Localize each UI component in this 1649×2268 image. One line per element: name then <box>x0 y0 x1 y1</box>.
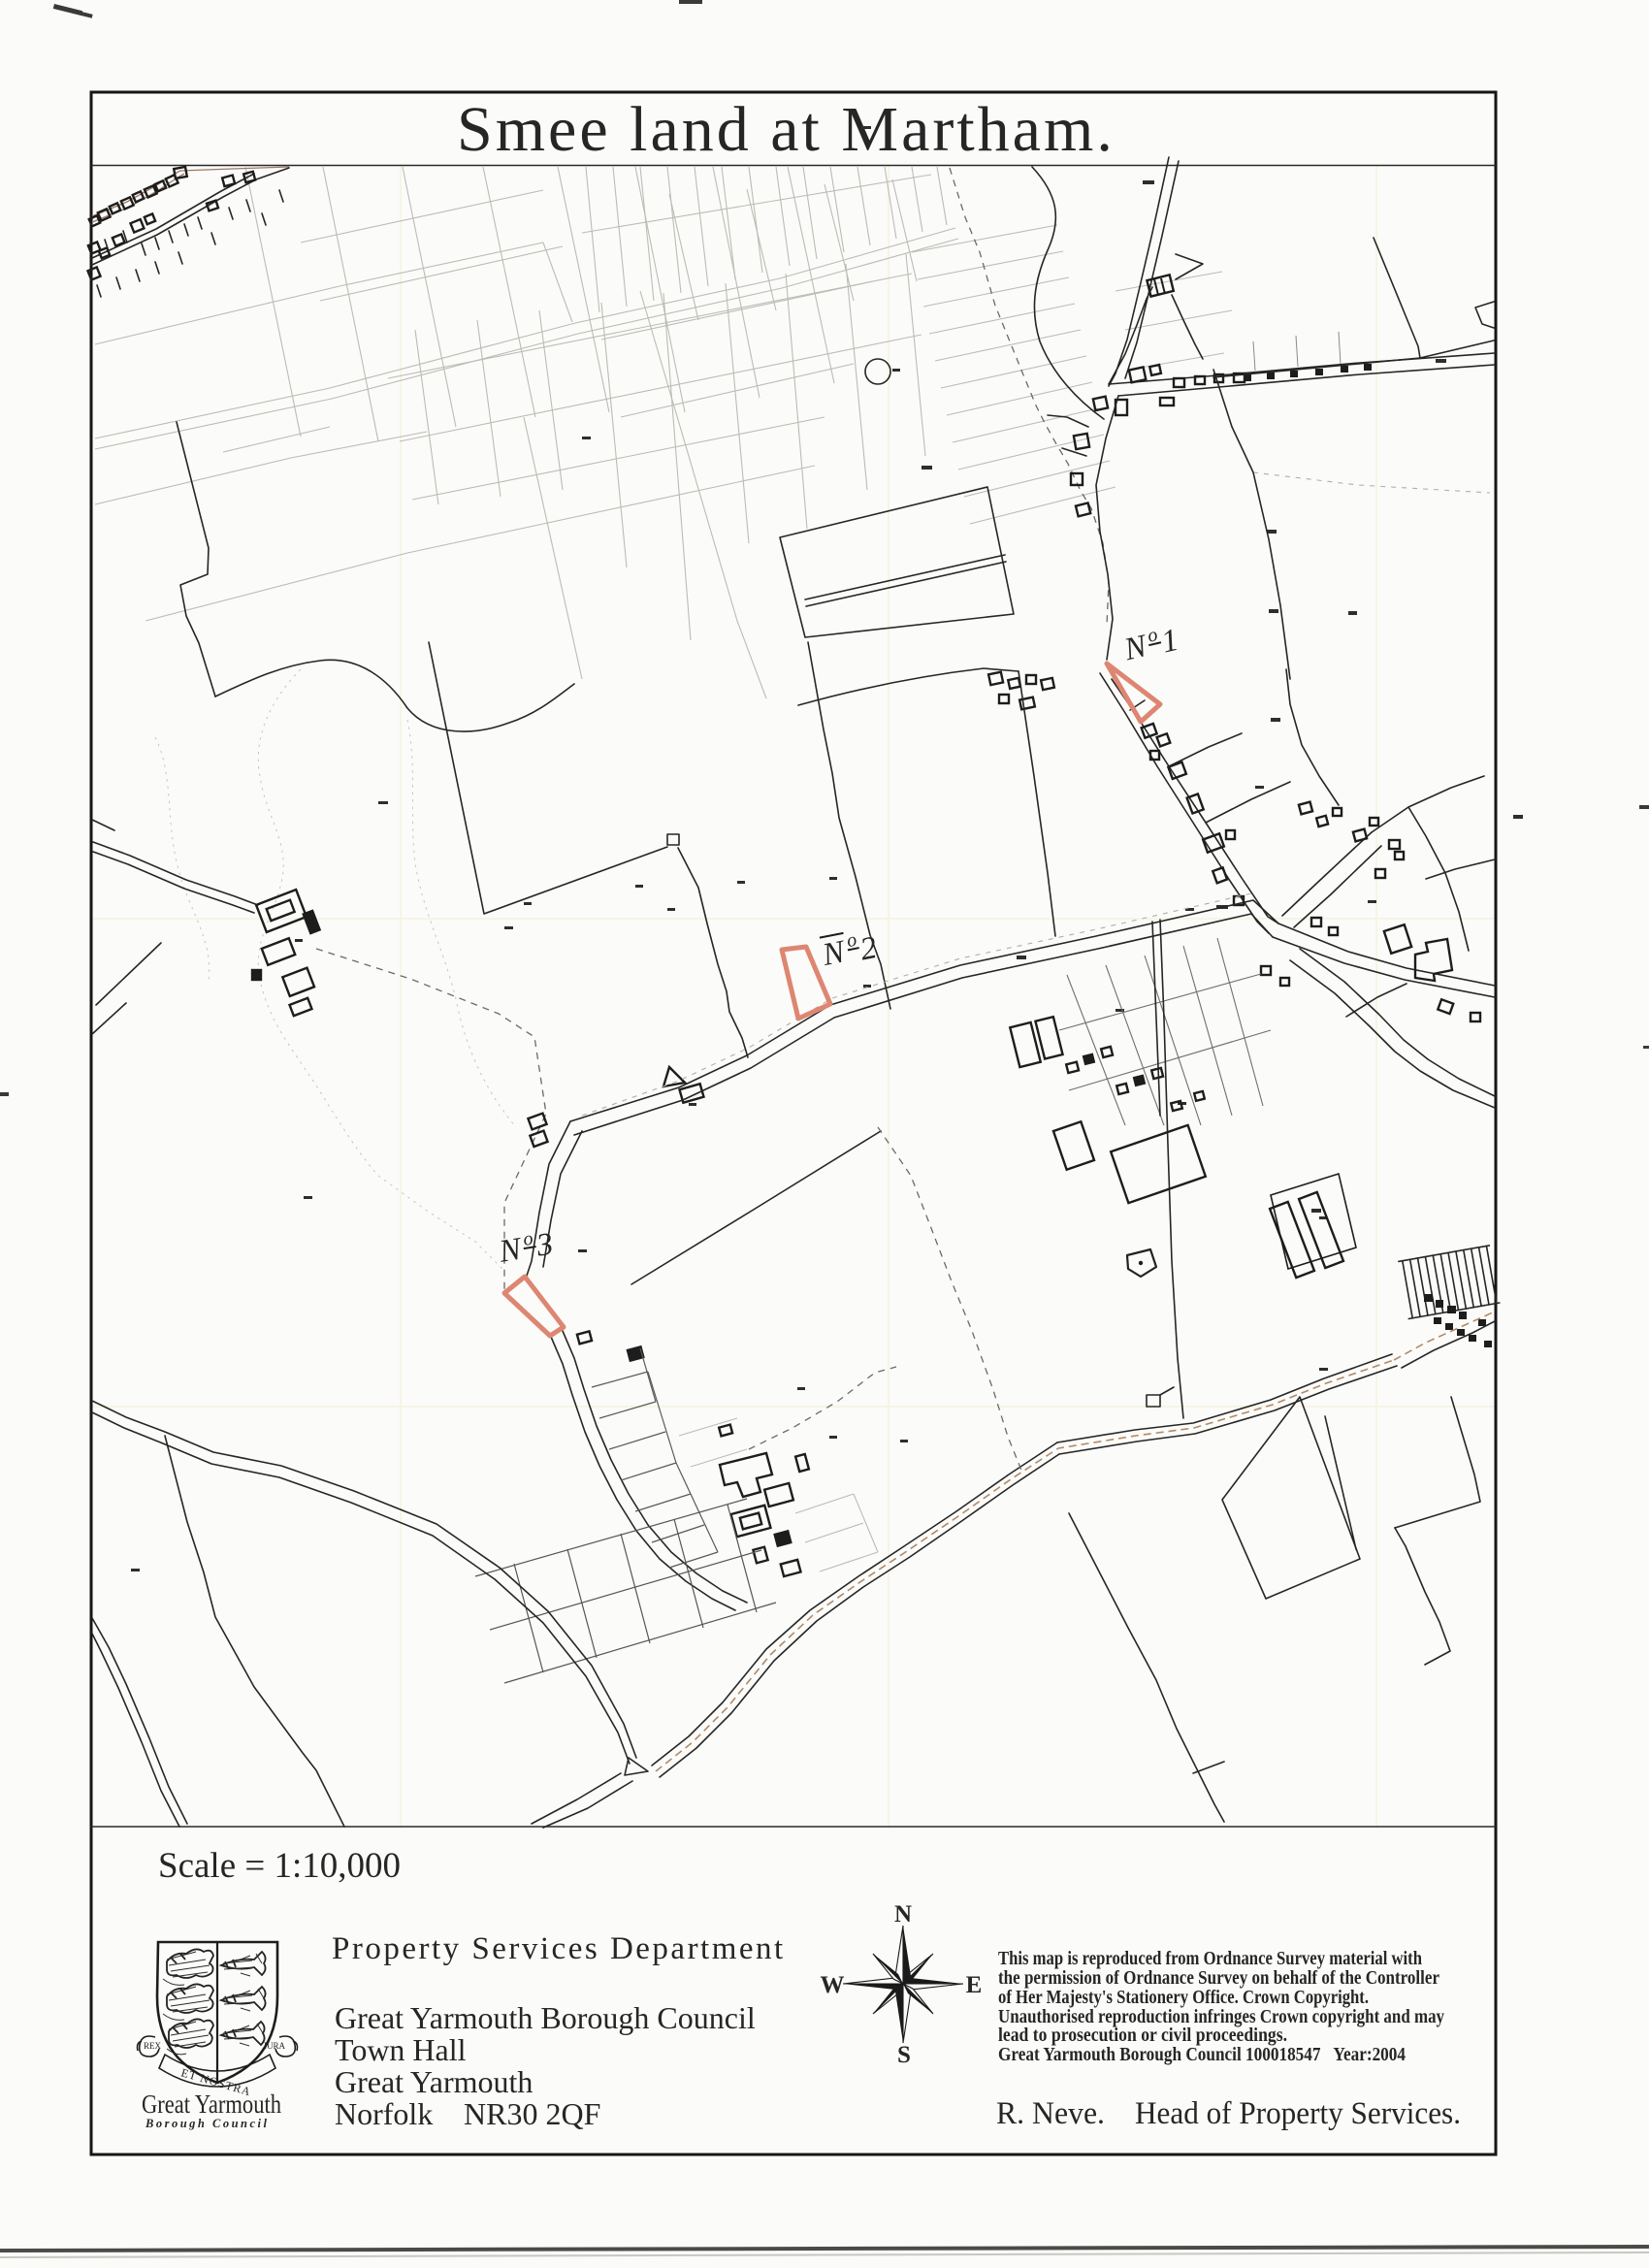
svg-text:S: S <box>897 2042 911 2068</box>
svg-text:Great Yarmouth Borough Council: Great Yarmouth Borough Council <box>335 2000 756 2035</box>
svg-text:Norfolk: Norfolk <box>335 2096 433 2131</box>
svg-text:N: N <box>894 1901 912 1928</box>
svg-text:Town Hall: Town Hall <box>335 2032 467 2067</box>
svg-text:IURA: IURA <box>264 2041 285 2051</box>
svg-text:Head of Property Services.: Head of Property Services. <box>1135 2096 1461 2131</box>
svg-text:Smee land at Martham.: Smee land at Martham. <box>457 94 1115 165</box>
svg-text:the permission of Ordnance Sur: the permission of Ordnance Survey on beh… <box>998 1967 1439 1989</box>
svg-text:REX: REX <box>144 2041 162 2051</box>
svg-text:W: W <box>821 1972 845 1998</box>
svg-text:Great Yarmouth Borough Council: Great Yarmouth Borough Council 100018547… <box>998 2044 1406 2065</box>
svg-text:This map is reproduced from Or: This map is reproduced from Ordnance Sur… <box>998 1948 1422 1969</box>
svg-text:Great Yarmouth: Great Yarmouth <box>335 2064 533 2099</box>
svg-text:Property Services Department: Property Services Department <box>332 1931 786 1966</box>
svg-text:Great Yarmouth: Great Yarmouth <box>142 2090 281 2119</box>
svg-text:Scale = 1:10,000: Scale = 1:10,000 <box>158 1846 401 1886</box>
svg-text:of Her Majesty's Stationery Of: of Her Majesty's Stationery Office. Crow… <box>998 1987 1369 2008</box>
svg-text:R. Neve.: R. Neve. <box>996 2096 1105 2131</box>
svg-text:E: E <box>966 1972 983 1998</box>
svg-text:NR30 2QF: NR30 2QF <box>464 2096 600 2131</box>
svg-text:lead to prosecution or civil p: lead to prosecution or civil proceedings… <box>998 2025 1287 2046</box>
svg-text:Borough Council: Borough Council <box>145 2117 269 2130</box>
